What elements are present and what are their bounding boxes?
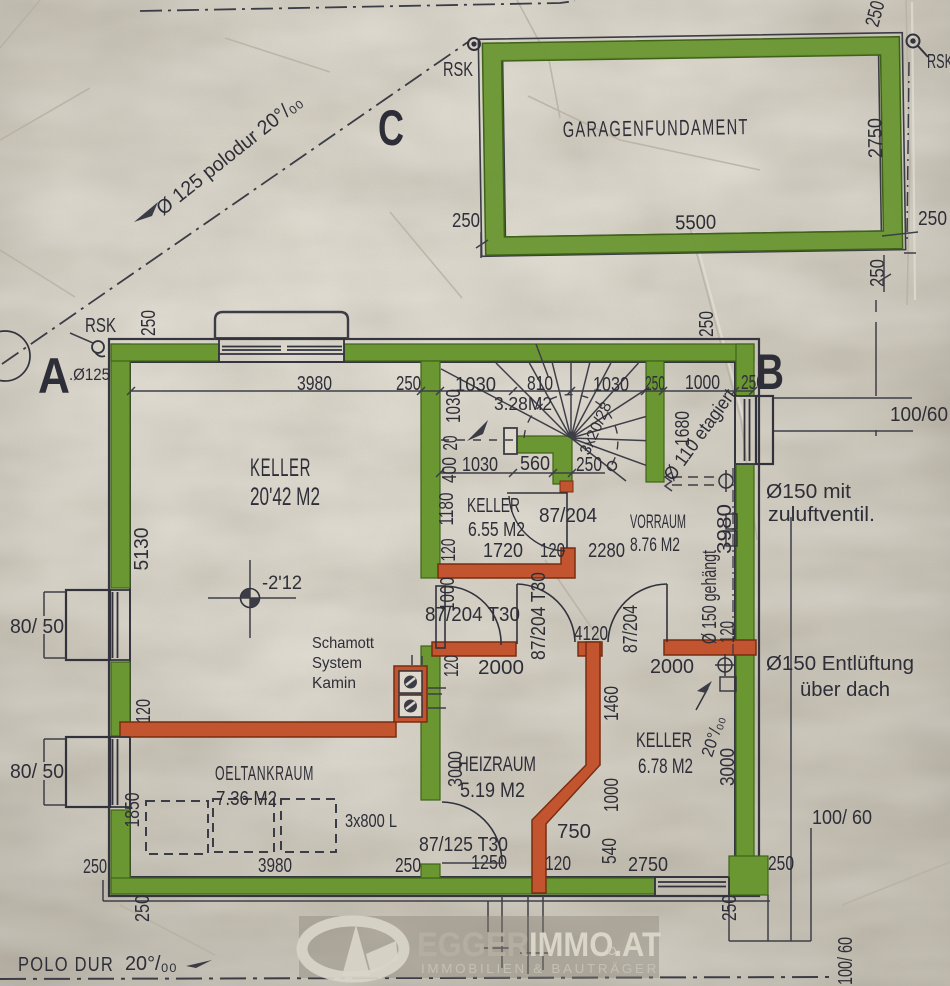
svg-text:1850: 1850 [122, 793, 144, 828]
svg-text:250: 250 [138, 310, 160, 336]
svg-text:87/125 T30: 87/125 T30 [419, 834, 508, 856]
svg-text:250: 250 [719, 895, 741, 921]
svg-text:250: 250 [867, 259, 889, 287]
svg-text:2750: 2750 [865, 118, 888, 158]
svg-text:400: 400 [439, 457, 461, 483]
svg-text:120: 120 [133, 699, 155, 723]
svg-text:250: 250 [645, 373, 665, 395]
svg-text:810: 810 [527, 373, 553, 395]
svg-text:100/ 60: 100/ 60 [835, 937, 857, 985]
svg-text:1720: 1720 [483, 540, 523, 562]
svg-text:5.19 M2: 5.19 M2 [460, 779, 525, 802]
svg-text:250: 250 [132, 895, 154, 922]
svg-text:250: 250 [696, 311, 718, 337]
svg-text:120: 120 [717, 621, 739, 643]
svg-text:100/ 60: 100/ 60 [812, 807, 872, 829]
svg-text:7.36 M2: 7.36 M2 [216, 788, 277, 810]
svg-text:87/204: 87/204 [620, 605, 642, 653]
svg-text:Ø150 Entlüftung: Ø150 Entlüftung [766, 653, 914, 675]
svg-text:250: 250 [83, 856, 107, 878]
svg-text:VORRAUM: VORRAUM [630, 512, 686, 533]
svg-text:1180: 1180 [436, 493, 458, 526]
svg-text:120: 120 [545, 853, 571, 875]
svg-text:KELLER: KELLER [467, 495, 520, 517]
svg-text:-2ʹ12: -2ʹ12 [262, 573, 302, 594]
svg-text:KELLER: KELLER [636, 729, 692, 752]
svg-text:20ʹ42 M2: 20ʹ42 M2 [250, 483, 320, 511]
svg-text:87/204 T30: 87/204 T30 [425, 604, 520, 626]
svg-text:5130: 5130 [131, 528, 153, 571]
svg-text:.Ø125: .Ø125 [69, 365, 110, 384]
svg-text:1460: 1460 [601, 686, 623, 721]
svg-text:3.28M2: 3.28M2 [494, 394, 552, 414]
svg-text:1000: 1000 [601, 778, 623, 812]
svg-text:3000: 3000 [445, 751, 467, 787]
svg-text:87/204 T30: 87/204 T30 [528, 572, 550, 660]
svg-text:250: 250 [768, 853, 794, 875]
svg-text:GARAGENFUNDAMENT: GARAGENFUNDAMENT [563, 114, 749, 142]
svg-text:5500: 5500 [675, 212, 716, 235]
svg-text:B: B [756, 344, 784, 400]
svg-text:A: A [38, 348, 70, 404]
svg-text:über dach: über dach [800, 679, 890, 701]
svg-text:8.76 M2: 8.76 M2 [630, 535, 680, 556]
svg-text:3980: 3980 [258, 855, 292, 877]
svg-text:EGGERIMMO.AT: EGGERIMMO.AT [417, 926, 661, 964]
svg-text:HEIZRAUM: HEIZRAUM [458, 753, 536, 776]
svg-text:RSK: RSK [443, 59, 473, 81]
svg-text:POLO DUR: POLO DUR [18, 954, 114, 976]
svg-text:80/ 50: 80/ 50 [10, 761, 64, 783]
svg-text:3980: 3980 [297, 373, 332, 395]
svg-text:250: 250 [918, 208, 947, 230]
svg-text:Kamin: Kamin [312, 675, 356, 692]
svg-text:1030: 1030 [593, 374, 629, 396]
svg-text:RSK: RSK [927, 51, 950, 73]
svg-text:RSK: RSK [85, 315, 116, 337]
svg-text:2000: 2000 [650, 656, 694, 678]
svg-text:OELTANKRAUM: OELTANKRAUM [215, 763, 314, 785]
svg-text:6.55 M2: 6.55 M2 [468, 519, 525, 541]
svg-text:KELLER: KELLER [250, 454, 311, 482]
svg-text:2280: 2280 [588, 540, 625, 562]
svg-text:80/ 50: 80/ 50 [10, 616, 64, 638]
svg-text:120: 120 [438, 539, 460, 562]
svg-text:750: 750 [557, 821, 591, 843]
svg-text:3x800 L: 3x800 L [345, 811, 397, 831]
svg-text:2750: 2750 [628, 854, 668, 876]
svg-text:Ø150 mit: Ø150 mit [766, 481, 851, 503]
svg-text:2000: 2000 [478, 657, 524, 679]
svg-text:3980: 3980 [714, 504, 736, 554]
svg-text:250: 250 [395, 855, 421, 877]
svg-text:250: 250 [396, 373, 421, 395]
svg-text:560: 560 [520, 453, 550, 475]
svg-text:Schamott: Schamott [312, 635, 375, 652]
svg-text:100/60: 100/60 [890, 404, 948, 426]
svg-text:System: System [312, 655, 362, 672]
svg-text:250: 250 [576, 454, 602, 476]
svg-text:540: 540 [599, 838, 621, 864]
svg-text:250: 250 [452, 210, 480, 232]
svg-text:C: C [378, 100, 404, 156]
svg-text:1000: 1000 [685, 372, 720, 394]
svg-text:3000: 3000 [717, 748, 739, 786]
svg-text:zuluftventil.: zuluftventil. [768, 504, 875, 526]
svg-text:6.78 M2: 6.78 M2 [638, 755, 693, 778]
svg-text:120: 120 [540, 540, 565, 562]
svg-text:1030: 1030 [443, 389, 465, 423]
svg-text:20°/₀₀: 20°/₀₀ [125, 953, 177, 975]
svg-text:87/204: 87/204 [539, 505, 597, 527]
svg-text:1030: 1030 [462, 454, 498, 476]
svg-text:4120: 4120 [574, 623, 608, 645]
svg-text:IMMOBILIEN & BAUTRÄGER: IMMOBILIEN & BAUTRÄGER [421, 961, 659, 976]
svg-text:20: 20 [440, 436, 462, 451]
svg-text:120: 120 [441, 655, 463, 677]
